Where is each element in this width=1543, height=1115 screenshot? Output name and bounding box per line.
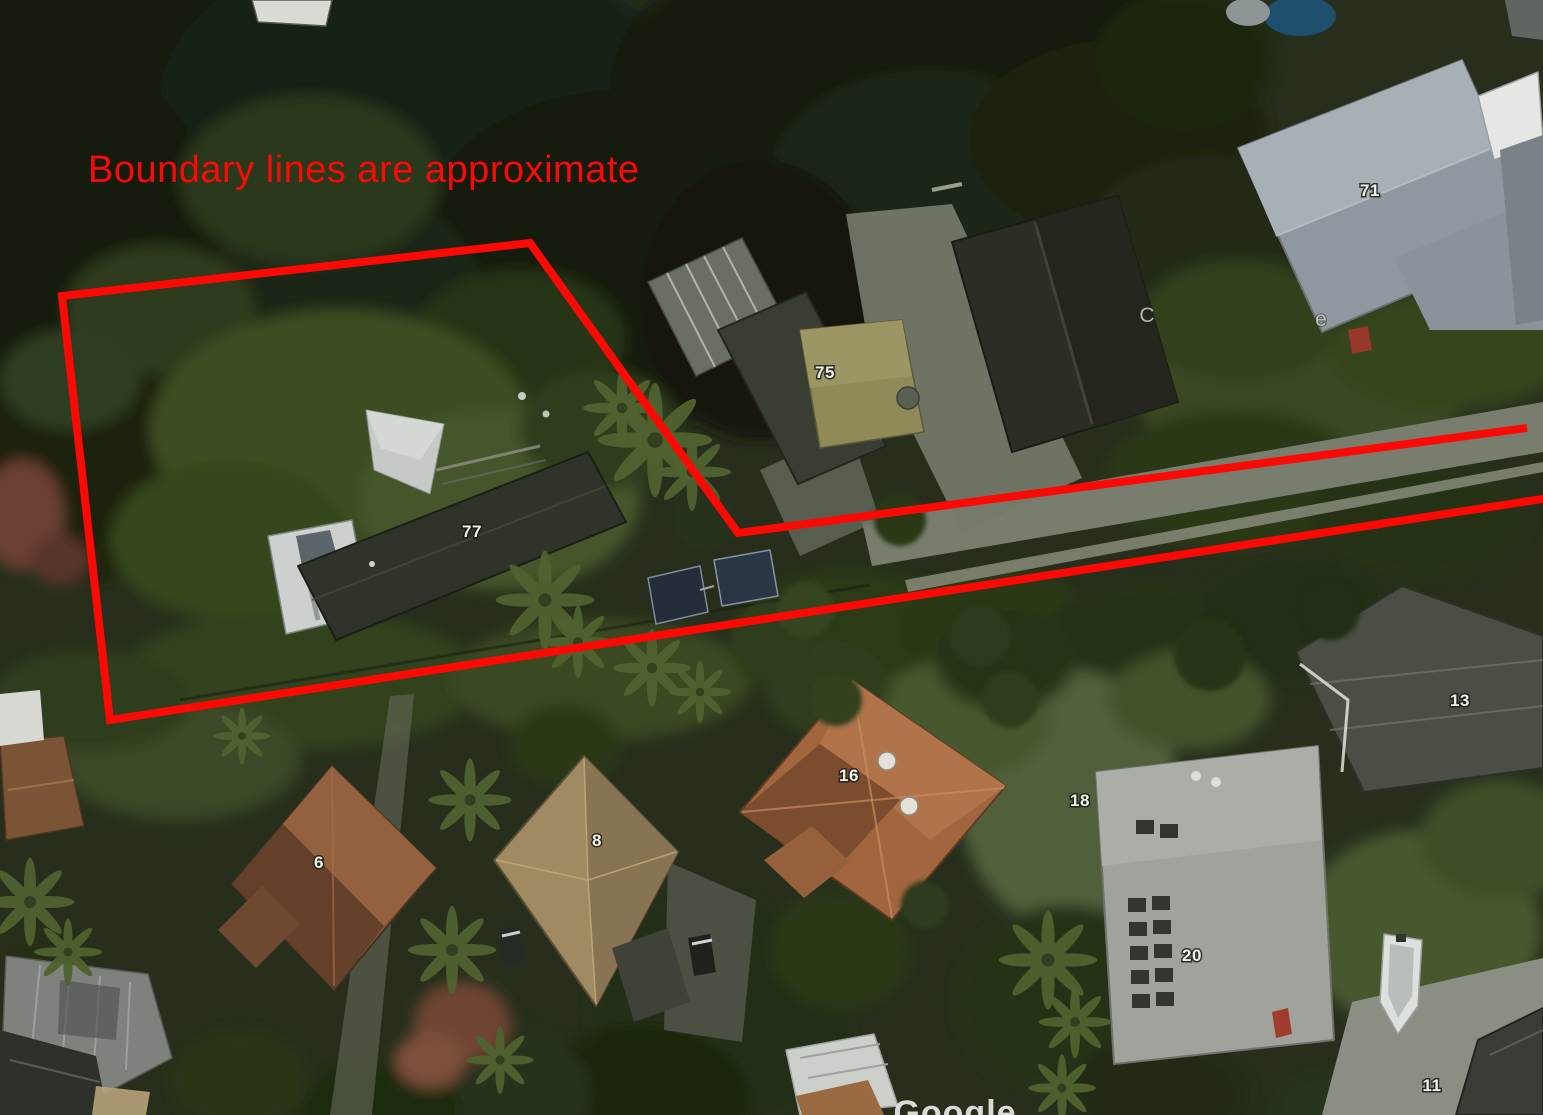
red-car (1348, 326, 1372, 354)
aerial-scene: Ce 777571161820138611 Google Boundary li… (0, 0, 1543, 1115)
house-number-8: 8 (592, 831, 602, 850)
street-label-fragment-0: C (1139, 304, 1154, 327)
house-number-20: 20 (1182, 946, 1202, 965)
building-20 (1096, 746, 1334, 1064)
disclaimer-text: Boundary lines are approximate (88, 149, 640, 191)
house-number-16: 16 (839, 766, 859, 785)
house-number-18: 18 (1070, 791, 1090, 810)
google-watermark: Google (893, 1094, 1016, 1115)
roof-vent (900, 797, 918, 815)
house-number-11: 11 (1423, 1076, 1442, 1095)
building-top-left-roof (252, 0, 332, 26)
house-number-71: 71 (1360, 181, 1380, 200)
satellite-image: Ce 777571161820138611 Google Boundary li… (0, 0, 1543, 1115)
house-number-75: 75 (815, 363, 835, 382)
house-number-6: 6 (314, 853, 324, 872)
water-tank (897, 387, 919, 409)
street-label-fragment-1: e (1315, 308, 1327, 331)
house-number-13: 13 (1450, 691, 1470, 710)
roof-vent (878, 752, 896, 770)
house-number-77: 77 (462, 522, 482, 541)
